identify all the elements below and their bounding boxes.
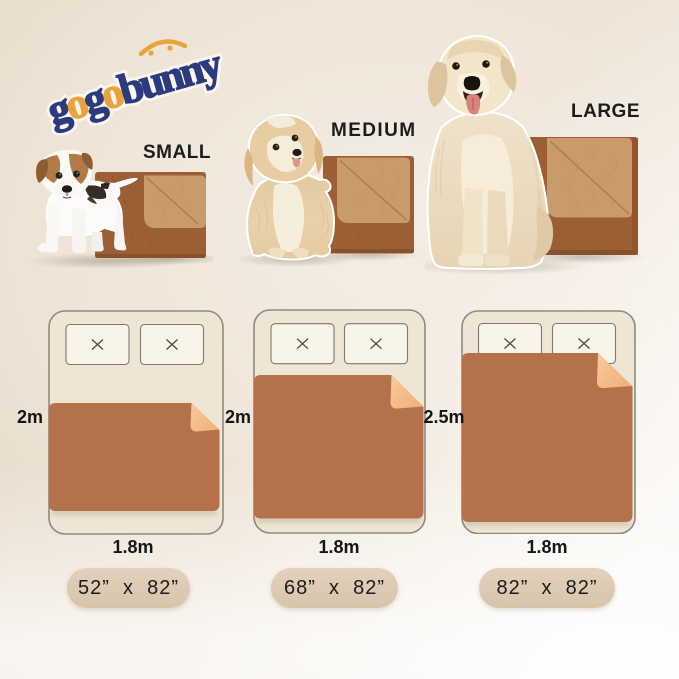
svg-text:gogobunny: gogobunny [42,40,228,135]
